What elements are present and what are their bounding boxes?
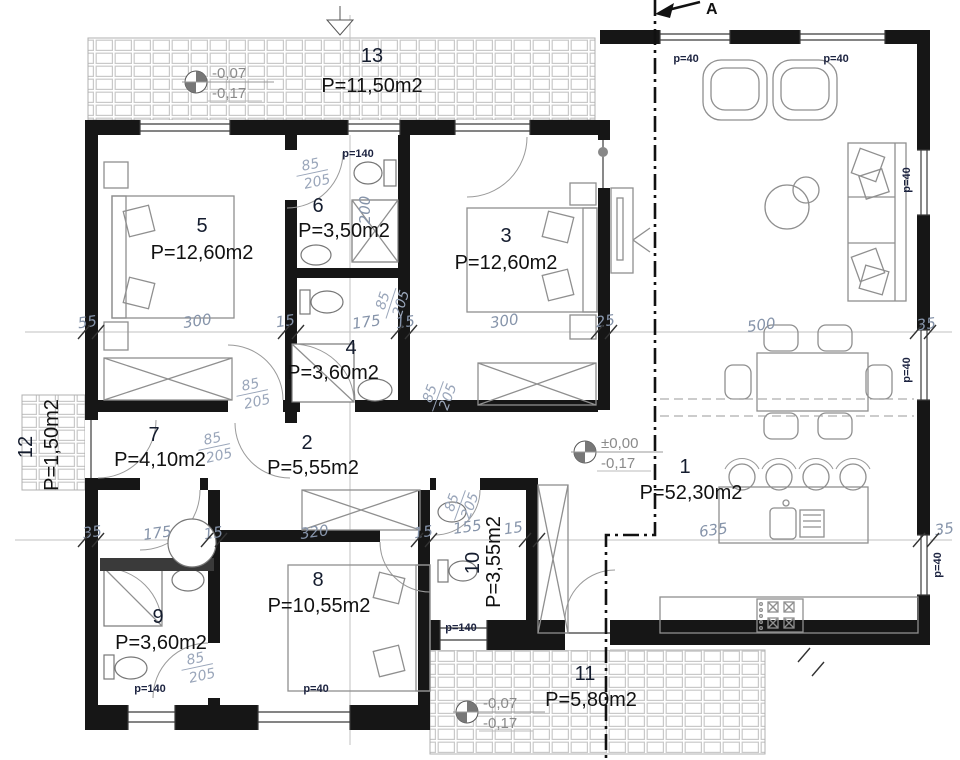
room3-number: 3 bbox=[500, 225, 511, 247]
room13-number: 13 bbox=[361, 45, 383, 67]
room10-area: P=3,55m2 bbox=[483, 516, 505, 608]
sofa bbox=[848, 143, 906, 301]
parapet-label: p=40 bbox=[932, 552, 944, 577]
window-room8 bbox=[258, 705, 350, 730]
floor-plan-page: A -0,07 -0,17 ±0,00 -0,17 -0,07 -0,17 13… bbox=[0, 0, 960, 760]
floor-plan-drawing: A -0,07 -0,17 ±0,00 -0,17 -0,07 -0,17 13… bbox=[0, 0, 960, 760]
parapet-labels: p=140 p=40 p=40 p=40 p=40 p=40 p=140 p=4… bbox=[134, 53, 944, 695]
room3-area: P=12,60m2 bbox=[455, 252, 558, 274]
toilet-bowl bbox=[311, 291, 343, 313]
chair bbox=[818, 413, 852, 439]
sink-drainer bbox=[800, 510, 824, 537]
dim-label: 635 bbox=[698, 519, 729, 541]
level-value-top: ±0,00 bbox=[601, 435, 638, 452]
toilet-tank bbox=[438, 560, 448, 582]
door-arc-terrace11 bbox=[565, 570, 615, 620]
level-value-bottom: -0,17 bbox=[212, 85, 246, 102]
door-size-label: 85205 bbox=[293, 154, 332, 194]
toilet-tank bbox=[384, 160, 396, 186]
door-room3-terrace bbox=[455, 120, 530, 135]
room4-area: P=3,60m2 bbox=[287, 362, 379, 384]
room13-area: P=11,50m2 bbox=[321, 75, 422, 97]
room6-area: P=3,50m2 bbox=[298, 220, 390, 242]
wardrobe-room3 bbox=[478, 363, 596, 405]
bar-stool bbox=[803, 464, 829, 490]
section-line: A bbox=[606, 0, 718, 760]
svg-text:205: 205 bbox=[302, 172, 332, 193]
dim-label: 200 bbox=[356, 196, 374, 225]
parapet-label: p=40 bbox=[673, 53, 698, 65]
room12-number: 12 bbox=[15, 436, 37, 458]
room11-number: 11 bbox=[575, 663, 596, 685]
room2-number: 2 bbox=[301, 432, 312, 454]
bed-room8 bbox=[288, 565, 430, 691]
chair bbox=[764, 413, 798, 439]
dim-label: 175 bbox=[351, 311, 382, 333]
svg-text:205: 205 bbox=[242, 392, 272, 413]
nightstand bbox=[570, 315, 596, 339]
window-room6 bbox=[348, 120, 400, 135]
room2-area: P=5,55m2 bbox=[267, 457, 359, 479]
washbasin bbox=[301, 245, 331, 265]
section-arrow: A bbox=[655, 1, 718, 18]
dim-label: 35 bbox=[916, 314, 937, 334]
entrance-marker bbox=[327, 6, 353, 35]
window-living-2 bbox=[800, 30, 885, 44]
level-value-top: -0,07 bbox=[483, 695, 517, 712]
dining-table bbox=[725, 325, 892, 439]
parapet-label: p=140 bbox=[134, 683, 166, 695]
dim-label: 15 bbox=[503, 518, 524, 538]
chair bbox=[866, 365, 892, 399]
door-arc-room3 bbox=[467, 137, 527, 197]
nightstand bbox=[570, 183, 596, 205]
room9-number: 9 bbox=[152, 606, 163, 628]
chair bbox=[818, 325, 852, 351]
wardrobe-room10 bbox=[538, 485, 568, 633]
room12-area: P=1,50m2 bbox=[41, 399, 63, 491]
room8-area: P=10,55m2 bbox=[268, 595, 371, 617]
section-label: A bbox=[706, 1, 718, 18]
dim-label: 500 bbox=[746, 314, 777, 336]
room10-number: 10 bbox=[462, 552, 484, 574]
washbasin bbox=[172, 569, 204, 591]
level-value-bottom: -0,17 bbox=[483, 715, 517, 732]
entrance-door-opening bbox=[85, 420, 98, 478]
sink-bowl bbox=[770, 508, 796, 539]
room4-number: 4 bbox=[345, 337, 356, 359]
bar-stool bbox=[840, 464, 866, 490]
level-marker-living: ±0,00 -0,17 bbox=[571, 435, 663, 472]
room7-number: 7 bbox=[148, 424, 159, 446]
nightstand bbox=[104, 162, 128, 188]
coffee-table bbox=[765, 177, 819, 229]
chair bbox=[725, 365, 751, 399]
room7-area: P=4,10m2 bbox=[114, 449, 206, 471]
parapet-label: p=40 bbox=[901, 357, 913, 382]
window-living-1 bbox=[660, 30, 730, 44]
window-right-1 bbox=[917, 150, 930, 215]
parapet-label: p=40 bbox=[823, 53, 848, 65]
wardrobe-room5 bbox=[104, 358, 232, 400]
parapet-label: p=140 bbox=[342, 148, 374, 160]
level-value-top: -0,07 bbox=[212, 65, 246, 82]
nightstand bbox=[104, 322, 128, 350]
window-room5 bbox=[140, 120, 230, 135]
door-size-label: 85205 bbox=[233, 374, 272, 414]
window-room9 bbox=[128, 705, 175, 730]
terrace-door-opening bbox=[565, 620, 610, 650]
dim-label: 300 bbox=[489, 310, 520, 332]
parapet-label: p=140 bbox=[445, 622, 477, 634]
room11-area: P=5,80m2 bbox=[545, 689, 637, 711]
window-right-3 bbox=[917, 535, 930, 595]
toilet-tank bbox=[104, 655, 114, 679]
armchair-1 bbox=[703, 60, 767, 120]
room5-area: P=12,60m2 bbox=[151, 242, 254, 264]
room1-number: 1 bbox=[679, 456, 690, 478]
dim-label: 25 bbox=[595, 311, 616, 331]
toilet-bowl bbox=[115, 657, 147, 679]
parapet-label: p=40 bbox=[303, 683, 328, 695]
toilet-tank bbox=[300, 290, 310, 314]
armchair-2 bbox=[773, 60, 837, 120]
dim-label: 15 bbox=[275, 311, 296, 331]
parapet-label: p=40 bbox=[901, 167, 913, 192]
level-value-bottom: -0,17 bbox=[601, 455, 635, 472]
room5-number: 5 bbox=[196, 215, 207, 237]
room8-number: 8 bbox=[312, 569, 323, 591]
room6-number: 6 bbox=[312, 195, 323, 217]
toilet-bowl bbox=[354, 162, 382, 184]
dim-label: 300 bbox=[182, 310, 213, 332]
svg-text:205: 205 bbox=[204, 446, 234, 467]
window-right-2 bbox=[917, 330, 930, 400]
door-hinge-dot bbox=[598, 147, 608, 157]
tv-unit bbox=[611, 188, 650, 273]
door-room3-living bbox=[598, 140, 610, 188]
room1-area: P=52,30m2 bbox=[640, 482, 743, 504]
bar-stool bbox=[766, 464, 792, 490]
faucet bbox=[783, 500, 789, 506]
svg-text:205: 205 bbox=[187, 666, 217, 687]
